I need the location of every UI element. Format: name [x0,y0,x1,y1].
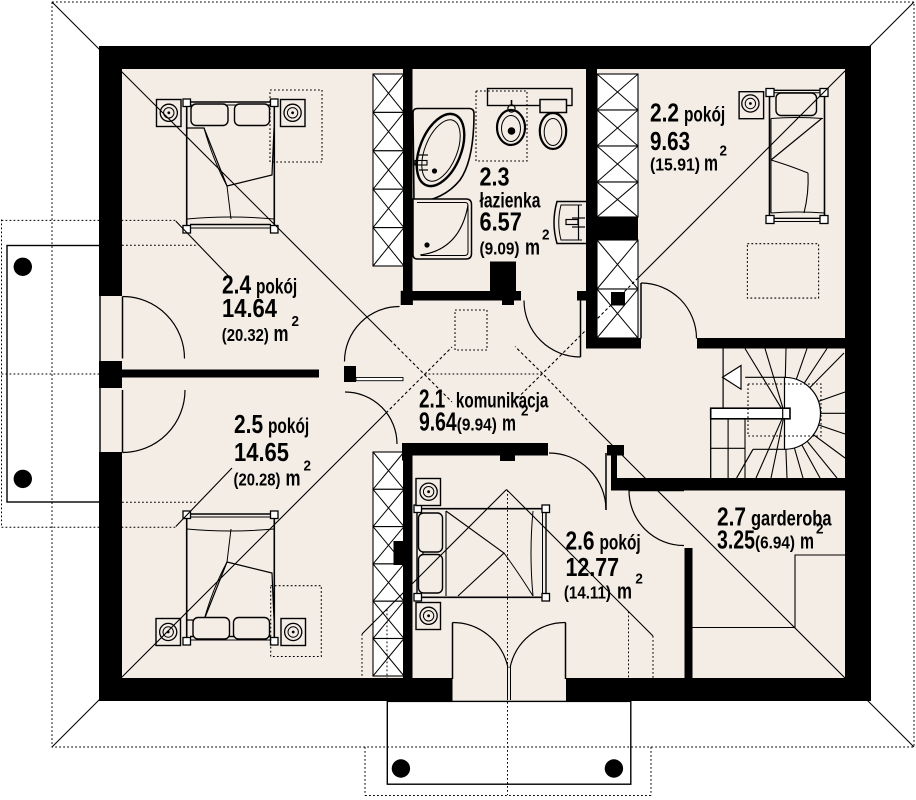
svg-text:14.65: 14.65 [234,437,289,467]
svg-text:12.77: 12.77 [566,552,620,582]
svg-text:pokój: pokój [268,414,309,438]
svg-text:m: m [274,321,289,346]
svg-text:pokój: pokój [684,102,725,126]
svg-text:14.64: 14.64 [222,293,277,323]
svg-text:2: 2 [292,313,300,330]
svg-text:m: m [502,411,516,436]
svg-text:(6.94): (6.94) [755,533,795,553]
svg-text:2: 2 [720,143,728,160]
svg-text:(9.09): (9.09) [480,238,520,258]
svg-text:2.3: 2.3 [480,161,510,191]
svg-text:pokój: pokój [600,531,641,555]
svg-text:(20.28): (20.28) [234,469,281,489]
svg-text:2: 2 [816,521,824,538]
svg-text:m: m [617,579,632,604]
svg-text:(15.91): (15.91) [650,155,700,175]
svg-text:m: m [525,234,540,259]
svg-text:2: 2 [635,571,643,588]
svg-text:2.2: 2.2 [650,97,679,127]
svg-text:m: m [800,529,814,554]
svg-text:9.64: 9.64 [419,407,457,437]
svg-text:3.25: 3.25 [717,525,755,555]
svg-text:2: 2 [304,457,312,474]
svg-text:komunikacja: komunikacja [456,389,549,413]
svg-text:6.57: 6.57 [480,206,522,236]
svg-text:2.5: 2.5 [234,409,263,439]
svg-text:9.63: 9.63 [650,126,690,156]
svg-text:2: 2 [542,226,550,243]
svg-text:m: m [286,465,301,490]
svg-text:(9.94): (9.94) [457,415,497,435]
svg-text:(20.32): (20.32) [222,325,269,345]
svg-text:2.6: 2.6 [566,526,595,556]
svg-text:2: 2 [521,403,529,420]
svg-text:(14.11): (14.11) [564,583,611,603]
svg-text:m: m [704,151,718,176]
